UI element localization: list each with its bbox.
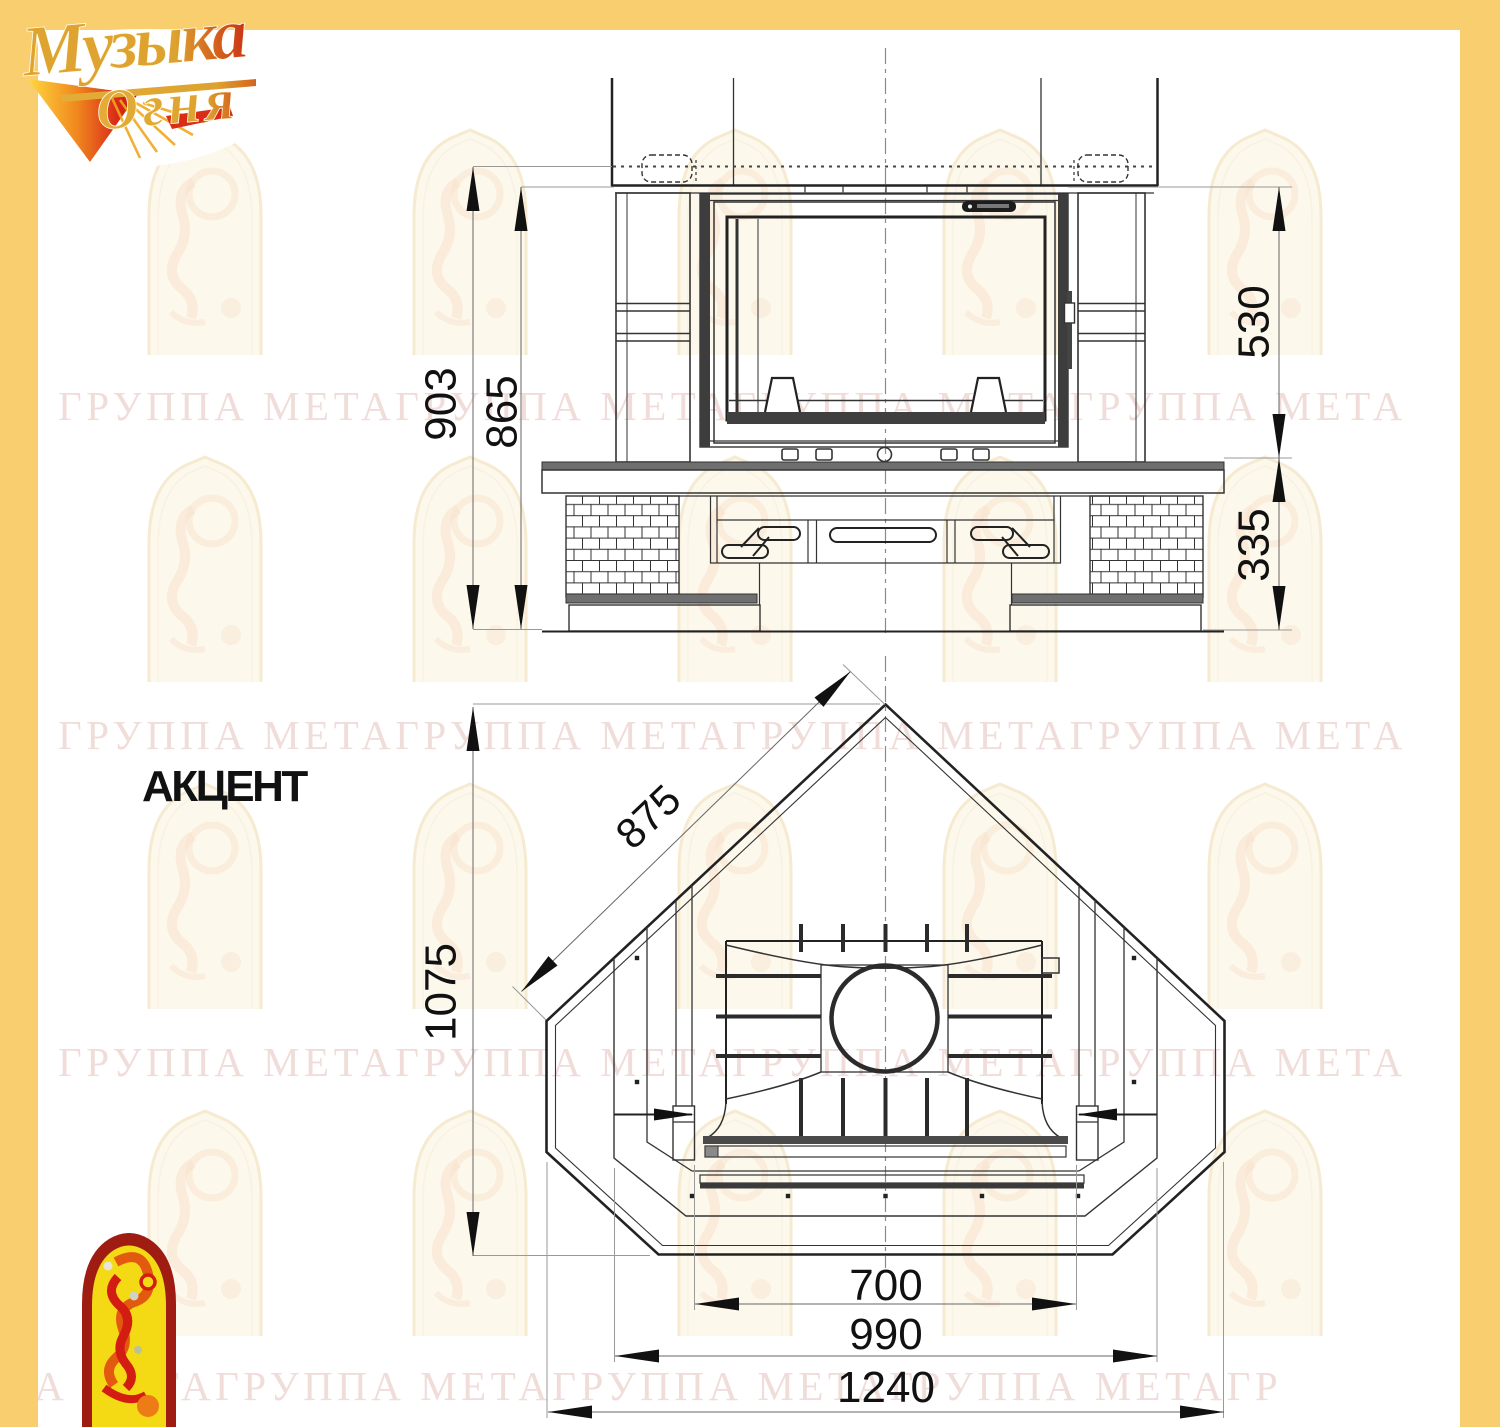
svg-text:990: 990 [849,1310,922,1359]
svg-text:865: 865 [478,375,527,448]
svg-text:1240: 1240 [837,1363,935,1412]
svg-text:875: 875 [606,775,689,857]
svg-text:903: 903 [417,367,466,440]
svg-text:530: 530 [1230,285,1279,358]
svg-text:1075: 1075 [417,943,466,1041]
svg-text:335: 335 [1230,508,1279,581]
svg-text:700: 700 [849,1261,922,1310]
